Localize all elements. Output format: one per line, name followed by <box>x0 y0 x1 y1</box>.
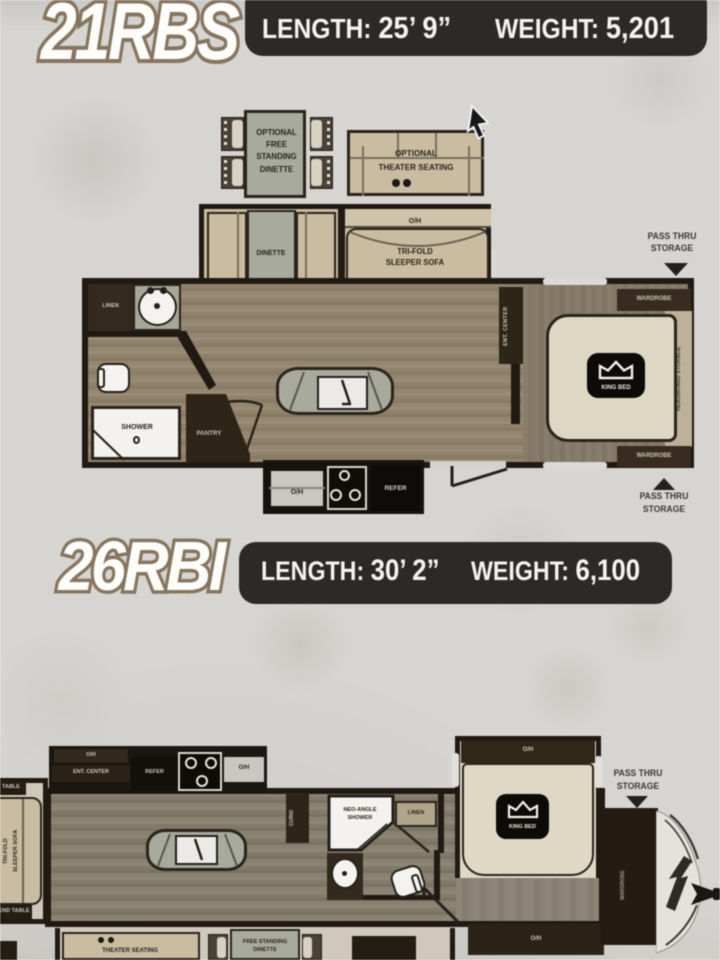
svg-text:21RBS: 21RBS <box>39 0 240 77</box>
svg-text:26RBI: 26RBI <box>57 528 228 606</box>
